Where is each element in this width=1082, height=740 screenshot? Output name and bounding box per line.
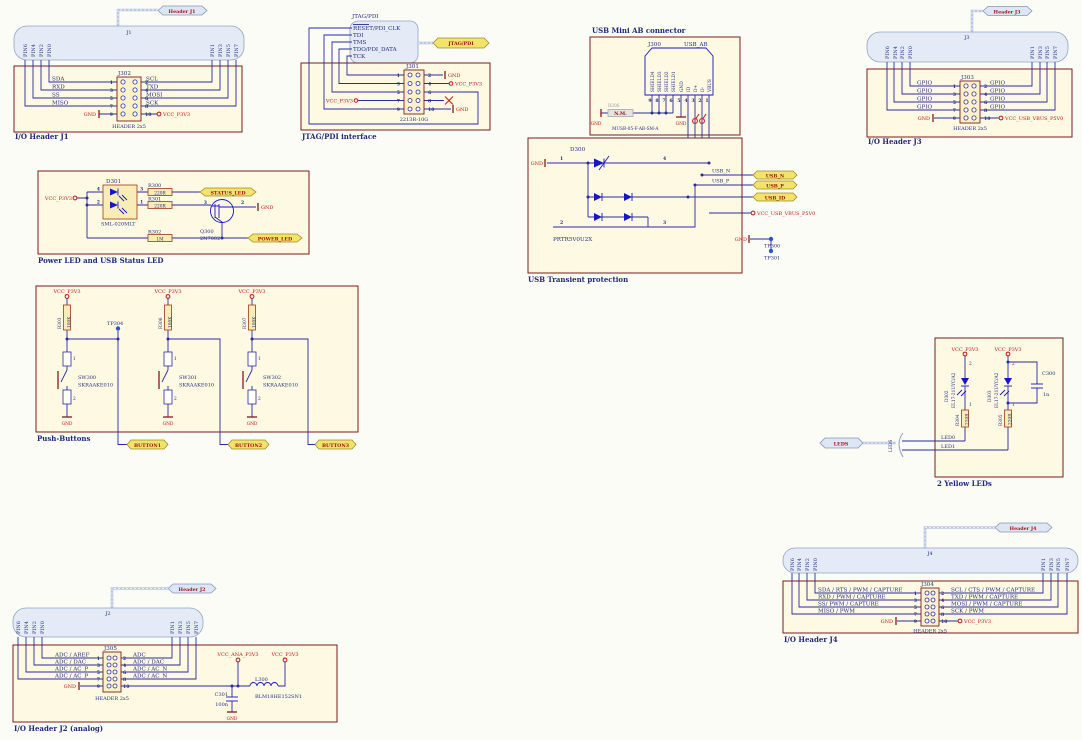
net-label: MOSI <box>146 93 162 99</box>
svg-text:3: 3 <box>97 663 100 669</box>
net-label: GPIO <box>990 97 1005 103</box>
pin-label: PIN0 <box>908 46 914 59</box>
svg-text:9: 9 <box>110 112 113 118</box>
pin-label: PIN7 <box>234 44 240 57</box>
capacitor-ref: C300 <box>1042 371 1055 377</box>
pin-number: 3 <box>204 200 207 206</box>
svg-text:8: 8 <box>428 99 431 105</box>
svg-text:BUTTON3: BUTTON3 <box>322 443 350 449</box>
block-title: 2 Yellow LEDs <box>937 479 992 488</box>
pin-label: PIN5 <box>1045 46 1051 59</box>
device-ref: Q300 <box>200 229 214 235</box>
power-label: VCC_P3V3 <box>237 289 265 295</box>
svg-text:2: 2 <box>984 84 987 90</box>
block-title: I/O Header J4 <box>784 635 838 644</box>
svg-text:3: 3 <box>914 598 917 604</box>
svg-text:9: 9 <box>914 619 917 625</box>
switch-ref: SW301 <box>179 375 197 381</box>
svg-text:10: 10 <box>984 116 990 122</box>
pin-label: PIN0 <box>40 621 46 634</box>
svg-text:1: 1 <box>397 73 400 79</box>
pin-label: PIN2 <box>900 46 906 59</box>
resistor-ref: R303 <box>58 317 63 329</box>
svg-text:9: 9 <box>397 107 400 113</box>
svg-text:2: 2 <box>698 98 701 104</box>
pin-label: PIN4 <box>31 44 37 57</box>
svg-text:2: 2 <box>941 591 944 597</box>
resistor-value: 100K <box>169 316 174 328</box>
resistor-ref: R306 <box>159 317 164 329</box>
svg-text:6: 6 <box>669 98 672 104</box>
part-number: EL17-21UYC/A2 <box>995 372 1000 408</box>
net-label: RXD / PWM / CAPTURE <box>818 595 886 601</box>
svg-text:D-: D- <box>701 86 706 92</box>
power-label: VCC_USB_VBUS_P5V0 <box>1004 116 1063 122</box>
gnd-label: GND <box>676 122 687 127</box>
block-title: I/O Header J2 (analog) <box>14 724 103 733</box>
header-type: HEADER 2x5 <box>95 696 129 702</box>
header-ref: J304 <box>920 582 934 588</box>
pin-number: 2 <box>174 397 177 402</box>
svg-text:3: 3 <box>110 88 113 94</box>
net-label: SCL / CTS / PWM / CAPTURE <box>951 588 1035 594</box>
pin-number: 1 <box>73 357 76 362</box>
power-label: VCC_P3V3 <box>270 652 298 658</box>
svg-text:USB_ID: USB_ID <box>765 195 786 201</box>
block-title: Power LED and USB Status LED <box>38 256 163 265</box>
svg-text:SHIELD2: SHIELD2 <box>665 71 670 92</box>
block-title: Push-Buttons <box>37 434 91 443</box>
connector-name: USB_AB <box>684 42 708 48</box>
pin-number: 1 <box>560 156 563 162</box>
net-label: ADC / AC_N <box>132 667 167 673</box>
net-label: LED0 <box>941 435 955 441</box>
pin-label: PIN7 <box>1053 46 1059 59</box>
header-ref: J302 <box>117 71 131 77</box>
inductor-ref: L300 <box>255 677 268 683</box>
svg-text:1: 1 <box>953 84 956 90</box>
net-label: ADC / DAC <box>132 660 164 666</box>
pin-label: PIN1 <box>1041 558 1047 571</box>
pin-label: PIN6 <box>885 46 891 59</box>
pin-label: PIN7 <box>1065 558 1071 571</box>
net-label: SCK / PWM <box>951 609 984 615</box>
svg-text:6: 6 <box>428 90 431 96</box>
svg-text:8: 8 <box>145 104 148 110</box>
net-label: USB_P <box>712 179 730 185</box>
svg-text:SHIELD3: SHIELD3 <box>658 71 663 92</box>
svg-text:2: 2 <box>123 656 126 662</box>
gnd-label: GND <box>64 684 76 690</box>
net-label: SS/ PWM / CAPTURE <box>818 602 879 608</box>
svg-text:LEDS: LEDS <box>834 441 849 447</box>
header-type: HEADER 2x5 <box>112 124 146 130</box>
net-label: USB_N <box>712 169 731 175</box>
svg-text:9: 9 <box>953 116 956 122</box>
pin-label: PIN4 <box>893 46 899 59</box>
part-number: BLM18HE152SN1 <box>255 694 302 700</box>
block-title: I/O Header J3 <box>868 137 922 146</box>
block-io-header-j3: Header J3 J3 PIN6 PIN4 PIN2 PIN0 PIN1 PI… <box>867 7 1072 147</box>
gnd-label: GND <box>62 422 73 427</box>
pin-label: PIN1 <box>1030 46 1036 59</box>
pin-label: PIN2 <box>39 44 45 57</box>
header-type: HEADER 2x5 <box>953 126 987 132</box>
part-number: SKRAAKE010 <box>263 383 298 389</box>
resistor-ref: R302 <box>148 230 161 236</box>
part-number: PRTR5V0U2X <box>553 237 592 243</box>
header-symbol <box>404 70 424 114</box>
svg-text:5: 5 <box>677 98 680 104</box>
svg-text:5: 5 <box>110 96 113 102</box>
block-title: I/O Header J1 <box>15 132 69 141</box>
net-label: MISO / PWM <box>818 609 855 615</box>
svg-text:5: 5 <box>97 670 100 676</box>
signal-label: TDI <box>353 33 363 39</box>
switch-ref: SW302 <box>263 375 281 381</box>
svg-text:2: 2 <box>145 80 148 86</box>
resistor-value: 220R <box>1009 413 1014 425</box>
block-io-header-j1: Header J1 J1 PIN6 PIN4 PIN2 PIN0 PIN1 PI… <box>14 6 244 141</box>
block-title: JTAG/PDI interface <box>301 132 377 141</box>
gnd-label: GND <box>227 717 238 722</box>
pin-label: PIN6 <box>23 44 29 57</box>
signal-label: RESET/PDI_CLK <box>353 26 401 32</box>
net-label: ADC / AC_N <box>132 674 167 680</box>
svg-text:GND: GND <box>680 81 685 92</box>
device-ref: D302 <box>945 390 950 402</box>
pin-label: PIN3 <box>178 621 184 634</box>
gnd-label: GND <box>456 107 468 113</box>
pin-label: PIN5 <box>186 621 192 634</box>
resistor-value: N.M. <box>614 111 627 117</box>
part-number: MUSB-05-F-AB-SM-A <box>612 127 659 132</box>
power-label: VCC_USB_VBUS_P5V0 <box>756 211 815 217</box>
pin-label: PIN5 <box>226 44 232 57</box>
bus-label: LEDS <box>889 440 894 452</box>
gnd-label: GND <box>735 237 747 243</box>
power-label: VCC_P3V3 <box>963 619 991 625</box>
tag-label: Header J3 <box>994 9 1022 15</box>
header-ref: J305 <box>103 646 117 652</box>
resistor-ref: R304 <box>956 414 961 426</box>
pin-number: 1 <box>1012 403 1015 408</box>
svg-text:STATUS_LED: STATUS_LED <box>210 190 245 196</box>
resistor-value: 1M <box>156 237 164 242</box>
power-label: VCC_P3V3 <box>325 99 353 105</box>
tag-label: JTAG/PDI <box>447 41 474 47</box>
pin-label: PIN0 <box>47 44 53 57</box>
net-label: LED1 <box>941 444 955 450</box>
block-yellow-leds: LEDS LEDS VCC_P3V3 VCC_P3V3 D302 EL17-21… <box>820 338 1063 488</box>
svg-text:5: 5 <box>914 605 917 611</box>
svg-text:USB_P: USB_P <box>766 183 784 189</box>
svg-text:USB_N: USB_N <box>766 173 785 179</box>
part-number: 2213R-10G <box>400 117 429 123</box>
net-label: RXD <box>52 85 65 91</box>
gnd-label: GND <box>448 73 460 79</box>
pin-number: 2 <box>241 200 244 206</box>
power-label: VCC_P3V3 <box>44 196 72 202</box>
svg-text:8: 8 <box>941 612 944 618</box>
net-label: ADC / AC_P <box>54 674 88 680</box>
pin-number: 1 <box>258 357 261 362</box>
tag-label: Header J2 <box>179 587 206 593</box>
usb-pin-numbers: 9 8 7 6 5 4 3 2 1 <box>648 98 708 104</box>
svg-text:3: 3 <box>691 98 694 104</box>
svg-text:ID: ID <box>687 86 692 92</box>
dual-led-body <box>103 185 137 219</box>
power-label: VCC_ANA_P3V3 <box>216 652 258 658</box>
part-number: SML-020MLT <box>101 222 136 228</box>
svg-text:6: 6 <box>123 670 126 676</box>
part-number: 2N7002 <box>200 236 220 242</box>
pin-number: 3 <box>663 220 666 226</box>
svg-text:3: 3 <box>397 82 400 88</box>
block-title: USB Mini AB connector <box>592 26 686 35</box>
block-title: USB Transient protection <box>528 275 628 284</box>
svg-text:6: 6 <box>941 605 944 611</box>
gnd-label: GND <box>918 116 930 122</box>
block-power-status-led: VCC_P3V3 D301 SML-020MLT 4 2 3 1 R300 22… <box>38 171 309 265</box>
connector-ref: J1 <box>125 30 131 36</box>
resistor-value: 100K <box>68 316 73 328</box>
tag-label: Header J4 <box>1010 526 1038 532</box>
svg-text:3: 3 <box>953 92 956 98</box>
svg-text:10: 10 <box>428 107 434 113</box>
pin-label: PIN1 <box>210 44 216 57</box>
bus-bracket <box>899 433 903 457</box>
net-label: SDA <box>52 77 65 83</box>
svg-text:7: 7 <box>397 99 400 105</box>
net-label: MOSI / PWM / CAPTURE <box>951 602 1022 608</box>
header-symbol <box>103 652 121 692</box>
header-ref: J303 <box>960 75 974 81</box>
header-ref: J301 <box>405 64 419 70</box>
part-number: EL17-21UYC/A2 <box>952 372 957 408</box>
capacitor-value: 100n <box>215 702 229 708</box>
pin-label: PIN0 <box>813 558 819 571</box>
device-ref: D303 <box>988 390 993 402</box>
bubble-title: JTAG/PDI <box>351 14 379 20</box>
svg-text:10: 10 <box>145 112 151 118</box>
svg-text:BUTTON2: BUTTON2 <box>235 443 262 449</box>
net-label: GPIO <box>990 105 1005 111</box>
switch-ref: SW300 <box>78 375 96 381</box>
svg-text:SHIELD1: SHIELD1 <box>672 71 677 92</box>
net-label: SDA / RTS / PWM / CAPTURE <box>818 588 902 594</box>
svg-text:1: 1 <box>914 591 917 597</box>
gnd-label: GND <box>881 619 893 625</box>
block-push-buttons: VCC_P3V3 R303 100K TP304 1 2 SW300 SKRAA… <box>36 286 358 449</box>
tag-label: Header J1 <box>169 9 196 15</box>
svg-text:SHIELD4: SHIELD4 <box>651 71 656 92</box>
schematic-page: Header J1 J1 PIN6 PIN4 PIN2 PIN0 PIN1 PI… <box>0 0 1082 740</box>
gnd-label: GND <box>247 422 258 427</box>
gnd-label: GND <box>591 122 602 127</box>
svg-text:10: 10 <box>123 684 129 690</box>
signal-label: TCK <box>353 54 366 60</box>
pin-label: PIN5 <box>1056 558 1062 571</box>
net-label: GPIO <box>917 105 932 111</box>
pin-label: PIN7 <box>194 621 200 634</box>
testpoint-tp301 <box>769 249 773 253</box>
resistor-ref: R307 <box>243 317 248 329</box>
connector-ref: J300 <box>647 42 661 48</box>
pin-number: 2 <box>969 362 972 367</box>
resistor-ref: R305 <box>999 414 1004 426</box>
pin-number: 2 <box>97 200 100 206</box>
svg-text:8: 8 <box>655 98 658 104</box>
resistor-ref: R300 <box>148 183 161 189</box>
device-ref: D300 <box>570 147 586 153</box>
connector-ref: J2 <box>104 611 110 617</box>
net-label: ADC / AREF <box>54 653 90 659</box>
pin-number: 3 <box>140 187 143 193</box>
net-label: GPIO <box>990 89 1005 95</box>
device-ref: D301 <box>106 179 121 185</box>
net-label: GPIO <box>990 81 1005 87</box>
net-label: GPIO <box>917 81 932 87</box>
svg-text:6: 6 <box>145 96 148 102</box>
signal-label: TMS <box>353 40 366 46</box>
block-io-header-j4: Header J4 J4 PIN6 PIN4 PIN2 PIN0 PIN1 PI… <box>783 523 1078 644</box>
power-terminal <box>751 211 755 215</box>
testpoint-label: TP300 <box>764 244 780 250</box>
signal-label: TDO/PDI_DATA <box>353 47 398 53</box>
resistor-value: 100K <box>253 316 258 328</box>
power-label: VCC_P3V3 <box>153 289 181 295</box>
pin-label: PIN3 <box>1049 558 1055 571</box>
connector-ref: J3 <box>963 35 969 41</box>
block-io-header-j2: Header J2 J2 PIN6 PIN4 PIN2 PIN0 PIN1 PI… <box>13 584 337 733</box>
power-label: VCC_P3V3 <box>162 112 190 118</box>
pin-number: 1 <box>174 357 177 362</box>
pin-label: PIN4 <box>24 621 30 634</box>
svg-text:8: 8 <box>123 677 126 683</box>
gnd-label: GND <box>163 422 174 427</box>
svg-text:10: 10 <box>941 619 947 625</box>
capacitor-ref: C301 <box>215 692 228 698</box>
pin-label: PIN6 <box>790 558 796 571</box>
testpoint-label: TP301 <box>764 256 780 262</box>
svg-text:POWER_LED: POWER_LED <box>258 236 292 242</box>
resistor-value: 220R <box>154 191 166 196</box>
pin-label: PIN3 <box>1038 46 1044 59</box>
pin-number: 1 <box>969 403 972 408</box>
pin-number: 2 <box>73 397 76 402</box>
gnd-label: GND <box>531 161 543 167</box>
net-label: MISO <box>52 101 69 107</box>
power-label: VCC_P3V3 <box>454 82 482 88</box>
resistor-ref: R301 <box>148 197 161 203</box>
svg-text:1: 1 <box>97 656 100 662</box>
svg-text:5: 5 <box>397 90 400 96</box>
part-number: SKRAAKE010 <box>78 383 113 389</box>
svg-text:7: 7 <box>97 677 100 683</box>
pin-label: PIN2 <box>32 621 38 634</box>
power-label: VCC_P3V3 <box>52 289 80 295</box>
pin-number: 1 <box>140 200 143 206</box>
svg-text:9: 9 <box>648 98 651 104</box>
svg-text:2: 2 <box>428 73 431 79</box>
svg-text:5: 5 <box>953 100 956 106</box>
pin-label: PIN2 <box>805 558 811 571</box>
svg-text:1: 1 <box>705 98 708 104</box>
svg-text:7: 7 <box>662 98 665 104</box>
svg-text:D+: D+ <box>694 85 699 92</box>
capacitor-value: 1n <box>1043 392 1050 398</box>
gnd-label: GND <box>84 112 96 118</box>
svg-text:7: 7 <box>953 108 956 114</box>
svg-text:7: 7 <box>110 104 113 110</box>
pin-label: PIN6 <box>16 621 22 634</box>
schematic-canvas: Header J1 J1 PIN6 PIN4 PIN2 PIN0 PIN1 PI… <box>0 0 1082 740</box>
net-label: GPIO <box>917 97 932 103</box>
pin-label: PIN3 <box>218 44 224 57</box>
svg-text:7: 7 <box>914 612 917 618</box>
pin-label: PIN4 <box>797 558 803 571</box>
net-label: ADC / DAC <box>54 660 86 666</box>
resistor-ref: R306 <box>608 104 620 109</box>
net-label: ADC / AC_P <box>54 667 88 673</box>
pin-number: 2 <box>1012 362 1015 367</box>
svg-text:9: 9 <box>97 684 100 690</box>
svg-text:VBUS: VBUS <box>708 79 713 93</box>
net-label: TXD / PWM / CAPTURE <box>951 595 1018 601</box>
svg-text:BUTTON1: BUTTON1 <box>134 443 161 449</box>
resistor-value: 220R <box>966 413 971 425</box>
svg-text:6: 6 <box>984 100 987 106</box>
net-label: ADC <box>132 653 146 659</box>
header-symbol <box>921 588 939 626</box>
pin-number: 2 <box>560 220 563 226</box>
resistor-value: 220R <box>154 204 166 209</box>
gnd-label: GND <box>261 205 273 211</box>
net-label: SS <box>52 93 60 99</box>
net-label: GPIO <box>917 89 932 95</box>
block-jtag-pdi: JTAG/PDI JTAG/PDI RESET/PDI_CLK TDI TMS … <box>301 14 490 141</box>
svg-text:1: 1 <box>110 80 113 86</box>
connector-ref: J4 <box>926 551 932 557</box>
block-usb-protection: GND D300 1 4 2 3 PRTR5V0U2X USB_N USB_P … <box>528 138 815 284</box>
testpoint-label: TP304 <box>107 321 123 327</box>
pin-number: 2 <box>258 397 261 402</box>
svg-text:8: 8 <box>984 108 987 114</box>
pin-label: PIN1 <box>170 621 176 634</box>
header-type: HEADER 2x5 <box>913 629 947 635</box>
header-symbol <box>960 81 980 123</box>
part-number: SKRAAKE010 <box>179 383 214 389</box>
testpoint-tp300 <box>769 237 773 241</box>
